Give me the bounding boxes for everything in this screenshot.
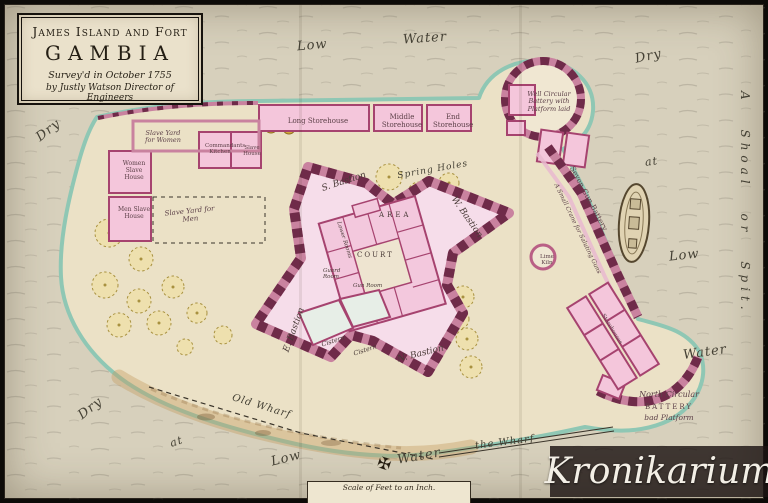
map-title-line4: by Justly Watson Director of Engineers: [22, 83, 198, 103]
parchment-paper: ✠ Low Water Dry at Low Water A Shoal or …: [4, 4, 764, 499]
slave-houses: [109, 151, 151, 241]
title-cartouche: James Island and Fort GAMBIA Survey'd in…: [17, 13, 203, 105]
storehouses-row: [259, 105, 471, 131]
paper-fold: [299, 5, 302, 498]
title-cartouche-inner: James Island and Fort GAMBIA Survey'd in…: [21, 17, 199, 101]
watermark-band: Kronikarium: [550, 446, 768, 497]
rock: [321, 440, 341, 446]
watermark-text: Kronikarium: [545, 451, 768, 492]
scale-bar: Scale of Feet to an Inch.: [307, 481, 471, 503]
lime-kiln-circle: [531, 245, 555, 269]
rock: [197, 414, 215, 421]
rock: [255, 430, 271, 436]
map-title-line2: GAMBIA: [22, 41, 198, 65]
paper-fold: [519, 5, 522, 498]
map-title-line1: James Island and Fort: [22, 24, 198, 39]
map-screenshot: ✠ Low Water Dry at Low Water A Shoal or …: [0, 0, 768, 503]
map-title-line3: Survey'd in October 1755: [22, 70, 198, 81]
scale-bar-label: Scale of Feet to an Inch.: [308, 483, 470, 492]
